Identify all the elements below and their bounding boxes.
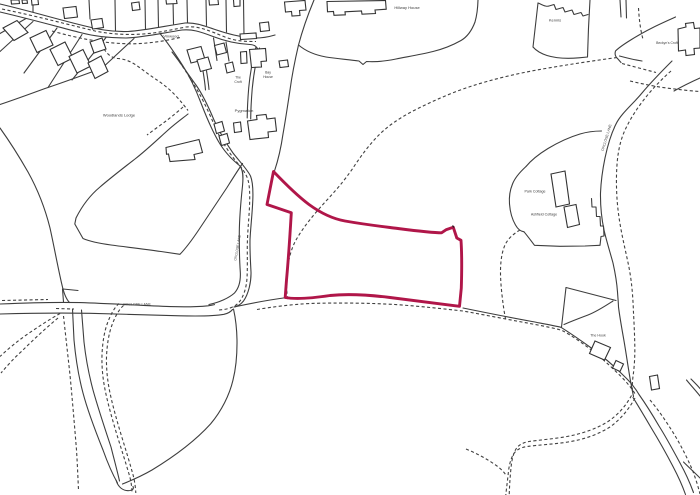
svg-text:Beckyn's Croft: Beckyn's Croft <box>656 41 678 45</box>
svg-text:Pygmalion: Pygmalion <box>235 108 254 113</box>
svg-text:OXCLOSE LANE: OXCLOSE LANE <box>123 303 151 307</box>
svg-text:The Hook: The Hook <box>590 334 606 338</box>
svg-text:Ashfield Cottage: Ashfield Cottage <box>531 213 557 217</box>
svg-text:Park Cottage: Park Cottage <box>525 190 546 194</box>
svg-text:Hillway House: Hillway House <box>394 5 420 10</box>
svg-text:Croft: Croft <box>234 80 241 84</box>
svg-text:House: House <box>263 75 273 79</box>
svg-text:Woodlands Lodge: Woodlands Lodge <box>103 113 136 118</box>
svg-text:Kennis: Kennis <box>549 18 561 23</box>
svg-text:Vinwood: Vinwood <box>163 34 178 39</box>
